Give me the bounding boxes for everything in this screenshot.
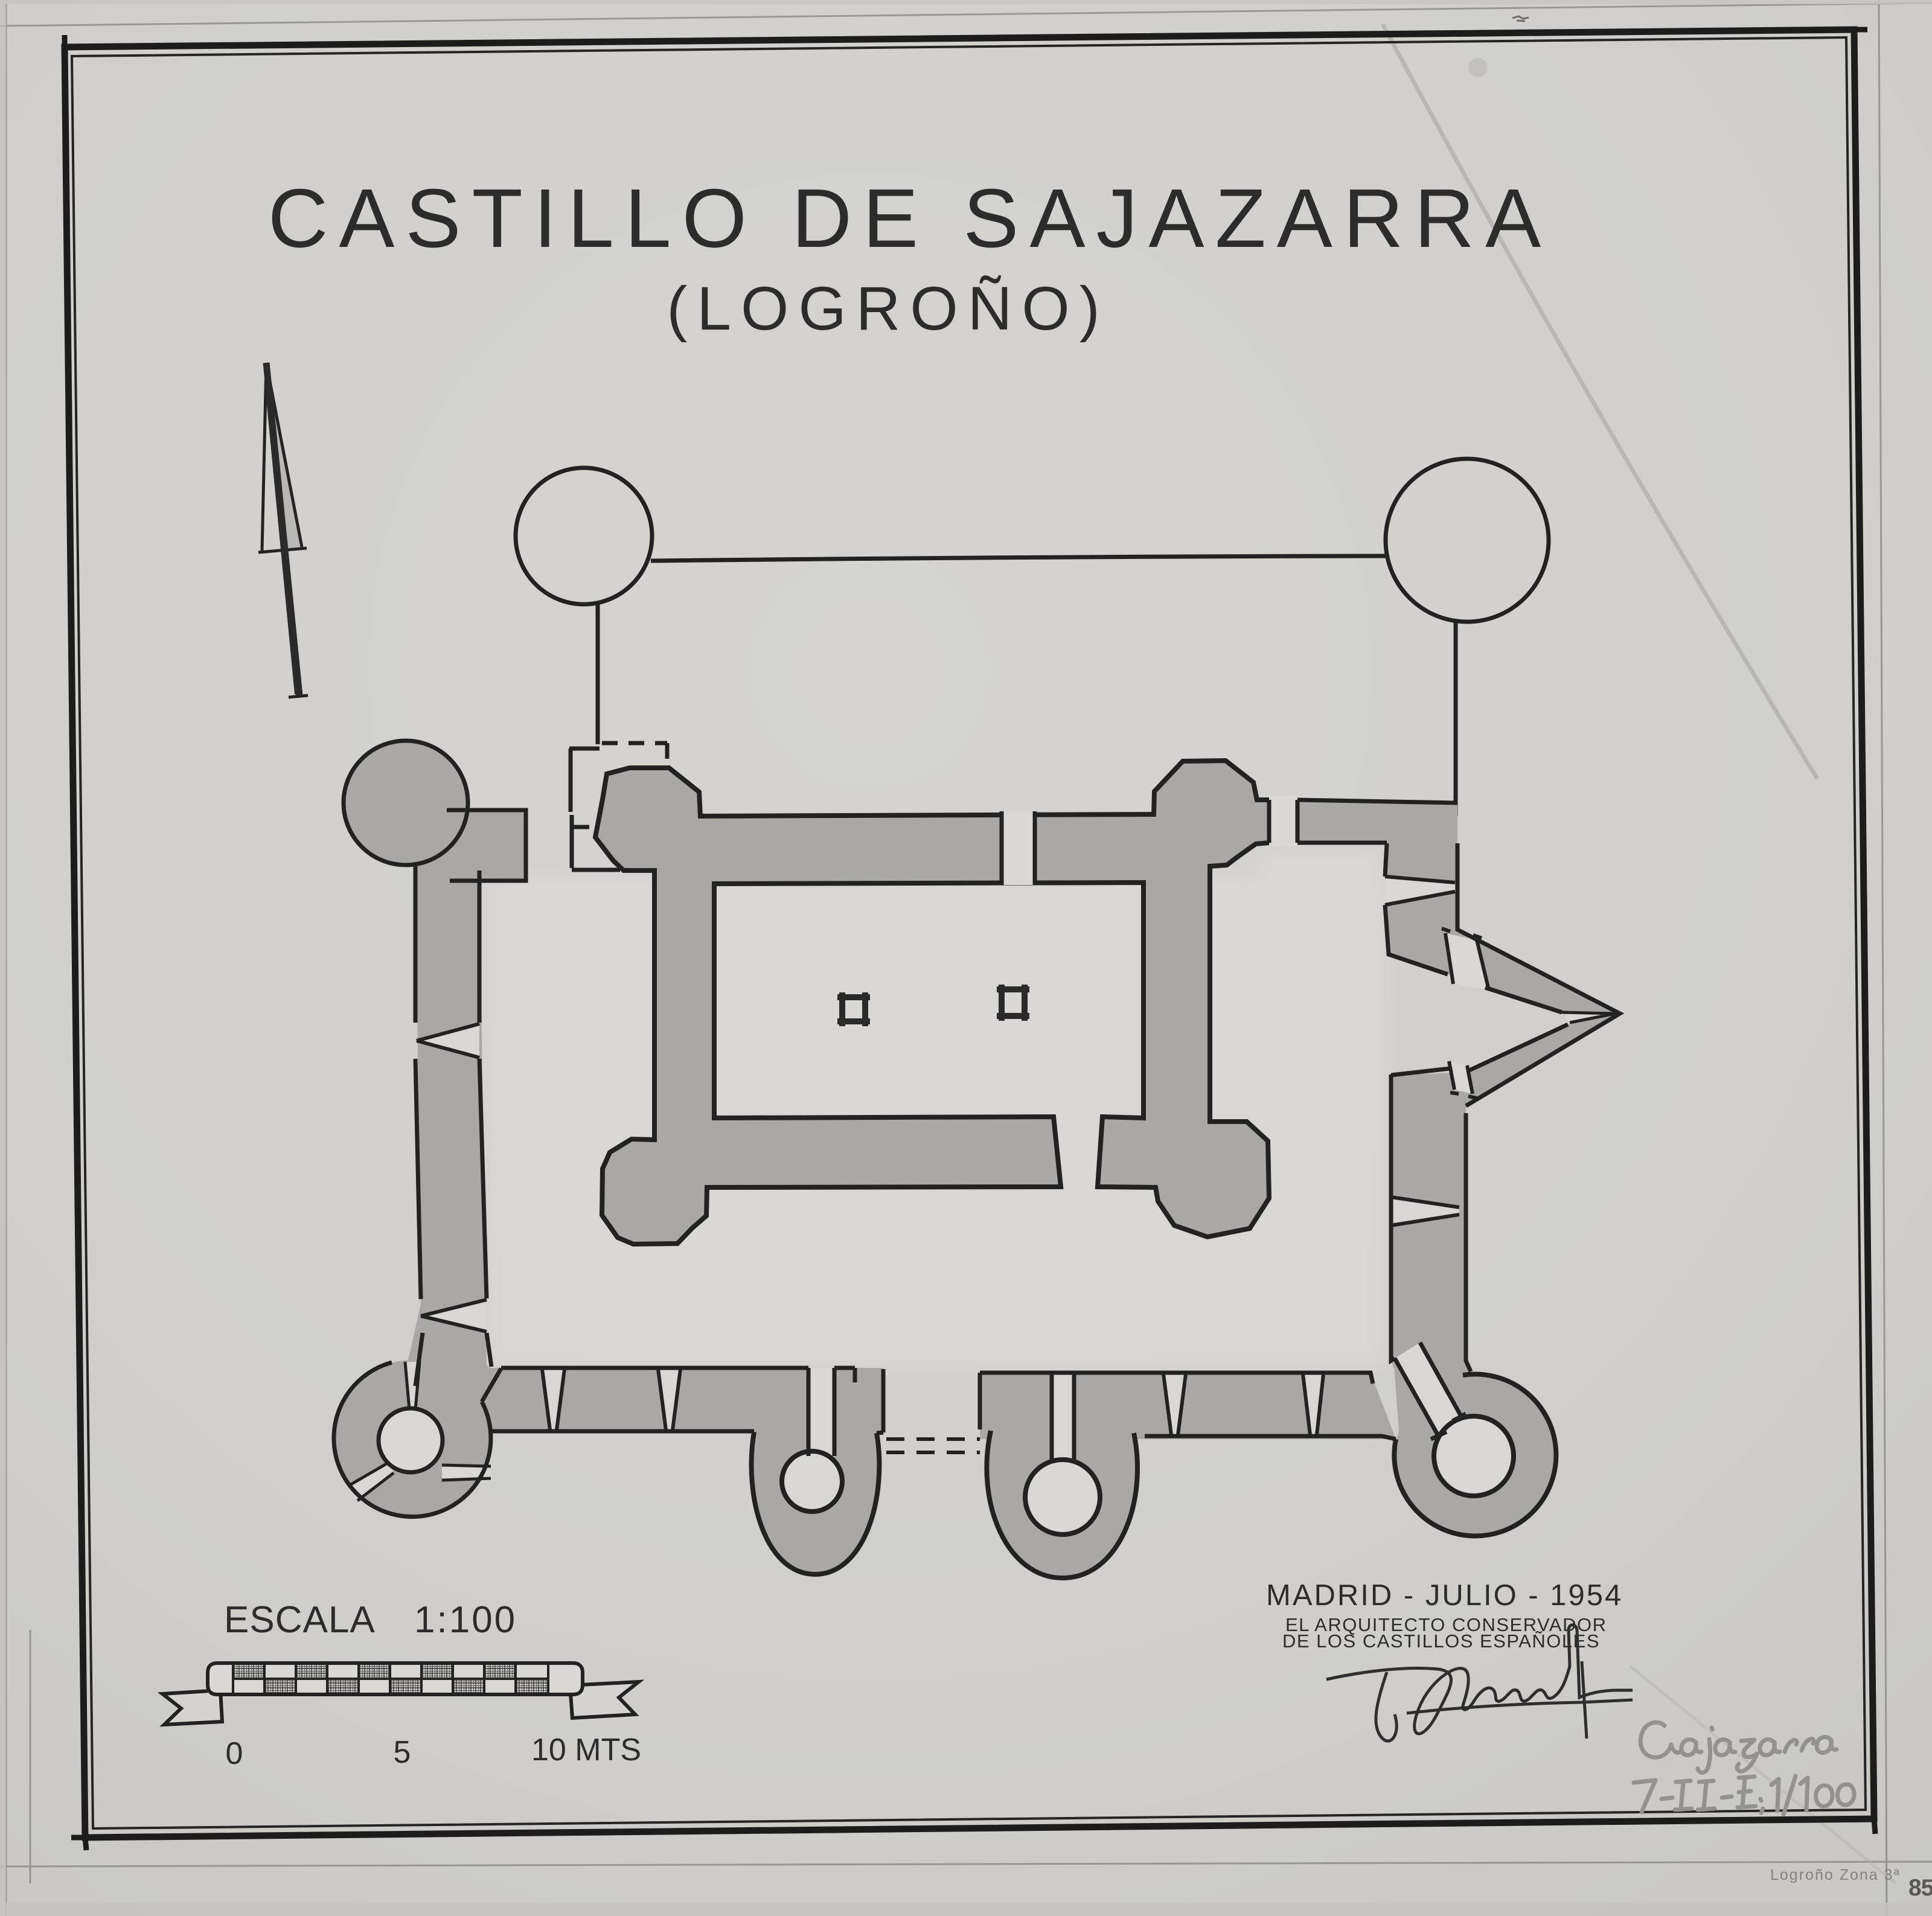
svg-text:85: 85 (1908, 1875, 1932, 1901)
svg-text:(LOGROÑO): (LOGROÑO) (667, 274, 1109, 343)
svg-text:5: 5 (394, 1735, 411, 1770)
svg-text:ESCALA: ESCALA (224, 1599, 376, 1641)
svg-text:CASTILLO DE SAJAZARRA: CASTILLO DE SAJAZARRA (268, 172, 1552, 265)
svg-text:1:100: 1:100 (414, 1599, 517, 1641)
svg-text:0: 0 (226, 1736, 243, 1771)
svg-text:10 MTS: 10 MTS (531, 1732, 641, 1768)
svg-text:Logroño Zona 3ª: Logroño Zona 3ª (1770, 1867, 1901, 1883)
svg-text:MADRID - JULIO - 1954: MADRID - JULIO - 1954 (1266, 1579, 1623, 1612)
svg-text:DE LOS CASTILLOS ESPAÑOLES: DE LOS CASTILLOS ESPAÑOLES (1282, 1630, 1600, 1652)
